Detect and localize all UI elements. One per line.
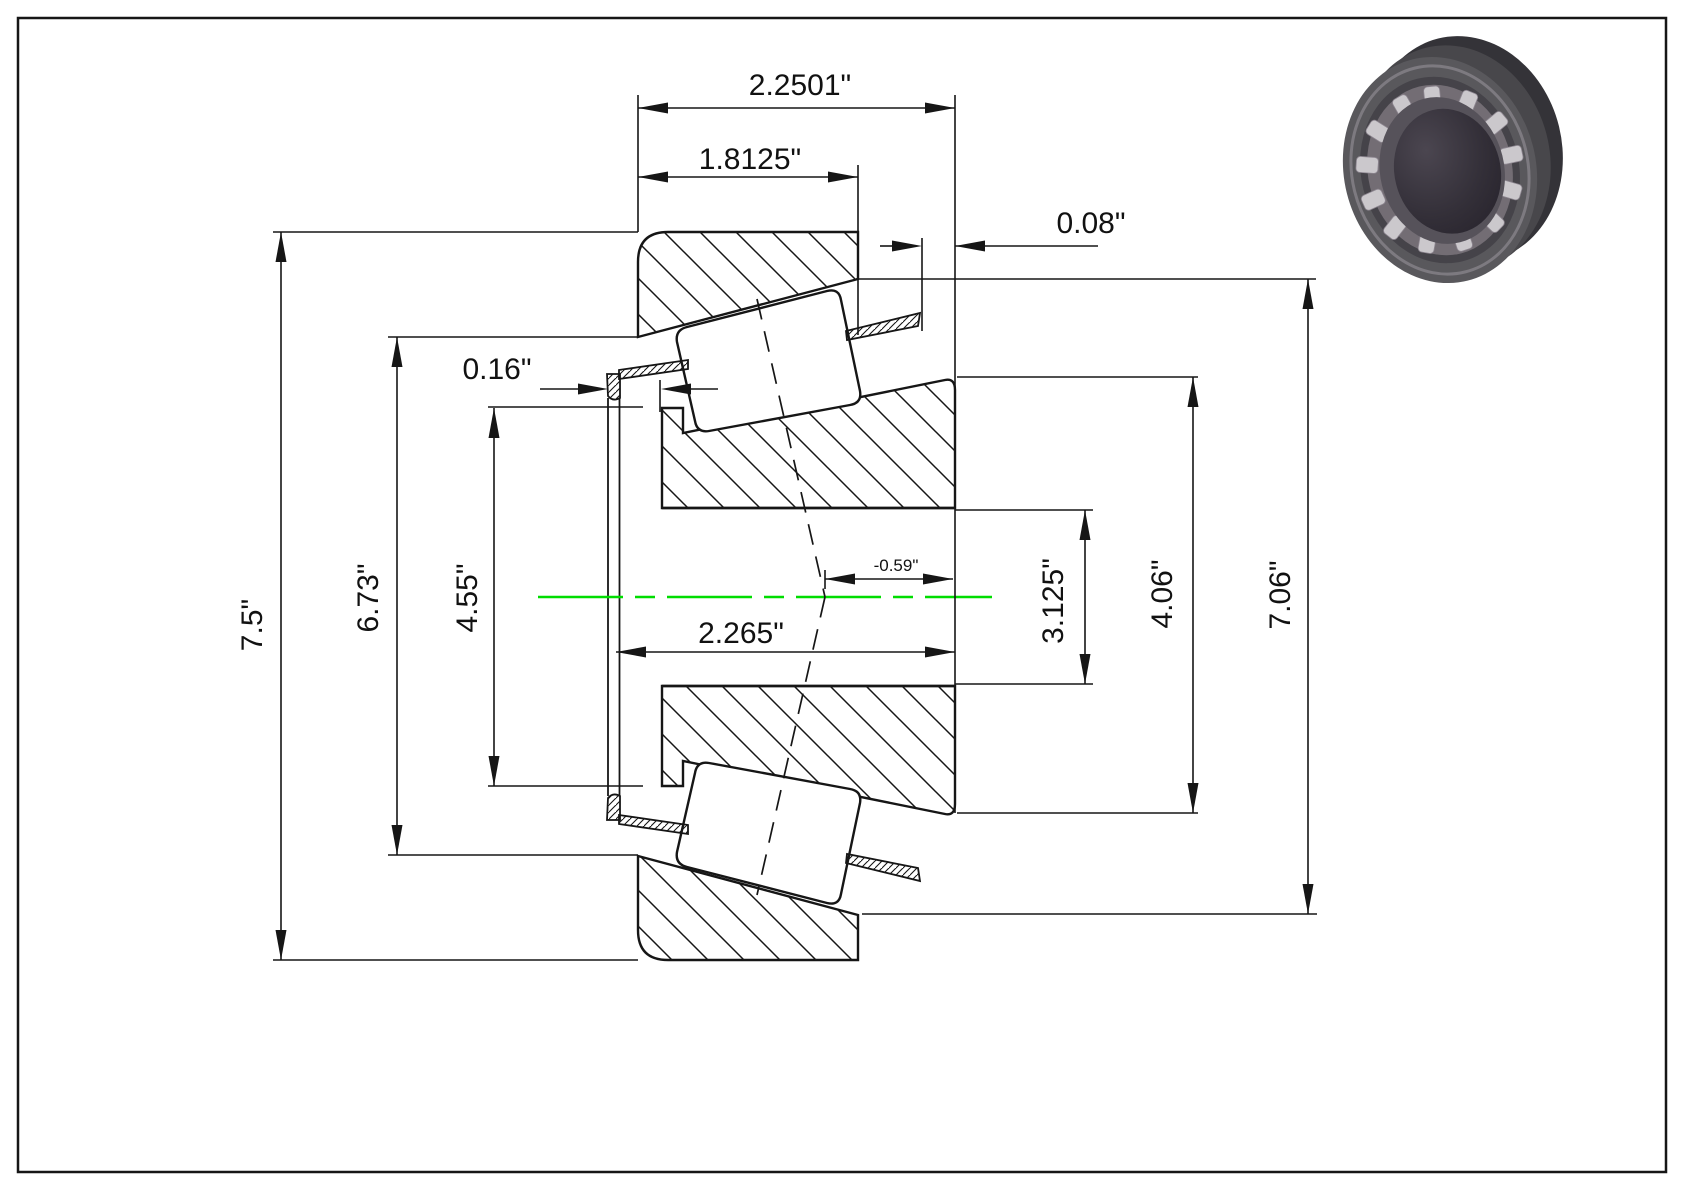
dim-label-cup-shoulder: 6.73": [352, 563, 385, 632]
cage-front-rim-lower: [607, 794, 620, 820]
dim-label-effective-center: -0.59": [874, 556, 919, 575]
dim-label-cone-front-od: 4.55": [451, 563, 484, 632]
dim-label-cone-back-od: 4.06": [1146, 559, 1179, 628]
technical-drawing-svg: 2.2501" 1.8125" 0.08" 0.16" -0.59" 2.265…: [0, 0, 1684, 1191]
drawing-page: 2.2501" 1.8125" 0.08" 0.16" -0.59" 2.265…: [0, 0, 1684, 1191]
dim-label-overall-width: 2.2501": [749, 69, 851, 102]
dim-label-cup-face-dia: 7.06": [1264, 560, 1297, 629]
dim-label-cone-rib: 3.125": [1037, 558, 1070, 644]
dim-label-cup-width: 1.8125": [699, 143, 801, 176]
cage-front-rim-upper: [607, 374, 620, 400]
dim-label-cone-width: 2.265": [698, 617, 784, 650]
dim-label-standout-front: 0.16": [462, 353, 531, 386]
dim-label-cup-od: 7.5": [236, 599, 269, 651]
dim-label-standout-back: 0.08": [1056, 207, 1125, 240]
